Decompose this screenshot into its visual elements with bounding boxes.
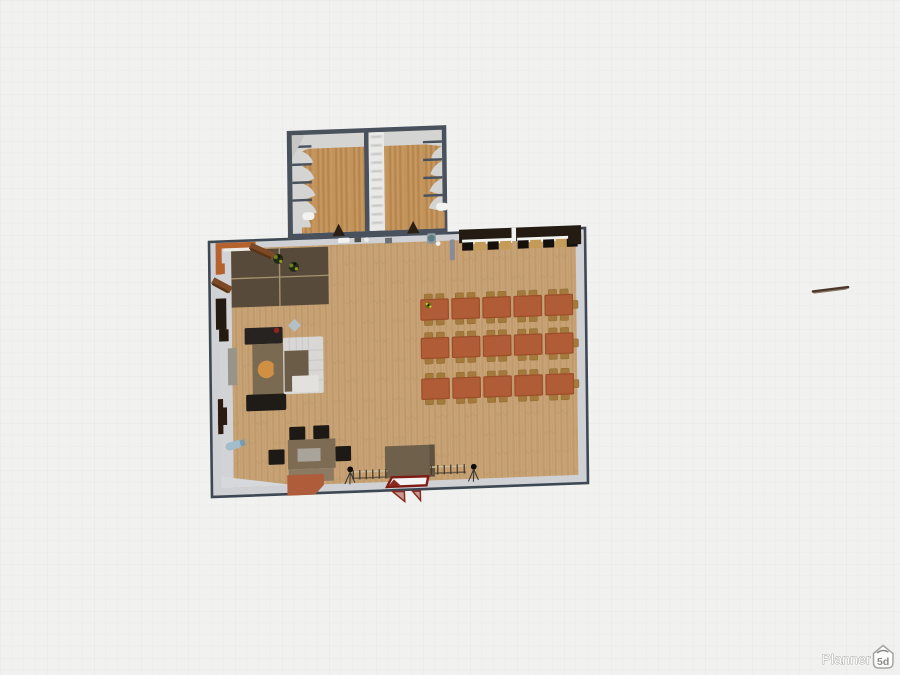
svg-text:5d: 5d bbox=[877, 656, 889, 668]
svg-text:Planner: Planner bbox=[821, 651, 871, 667]
